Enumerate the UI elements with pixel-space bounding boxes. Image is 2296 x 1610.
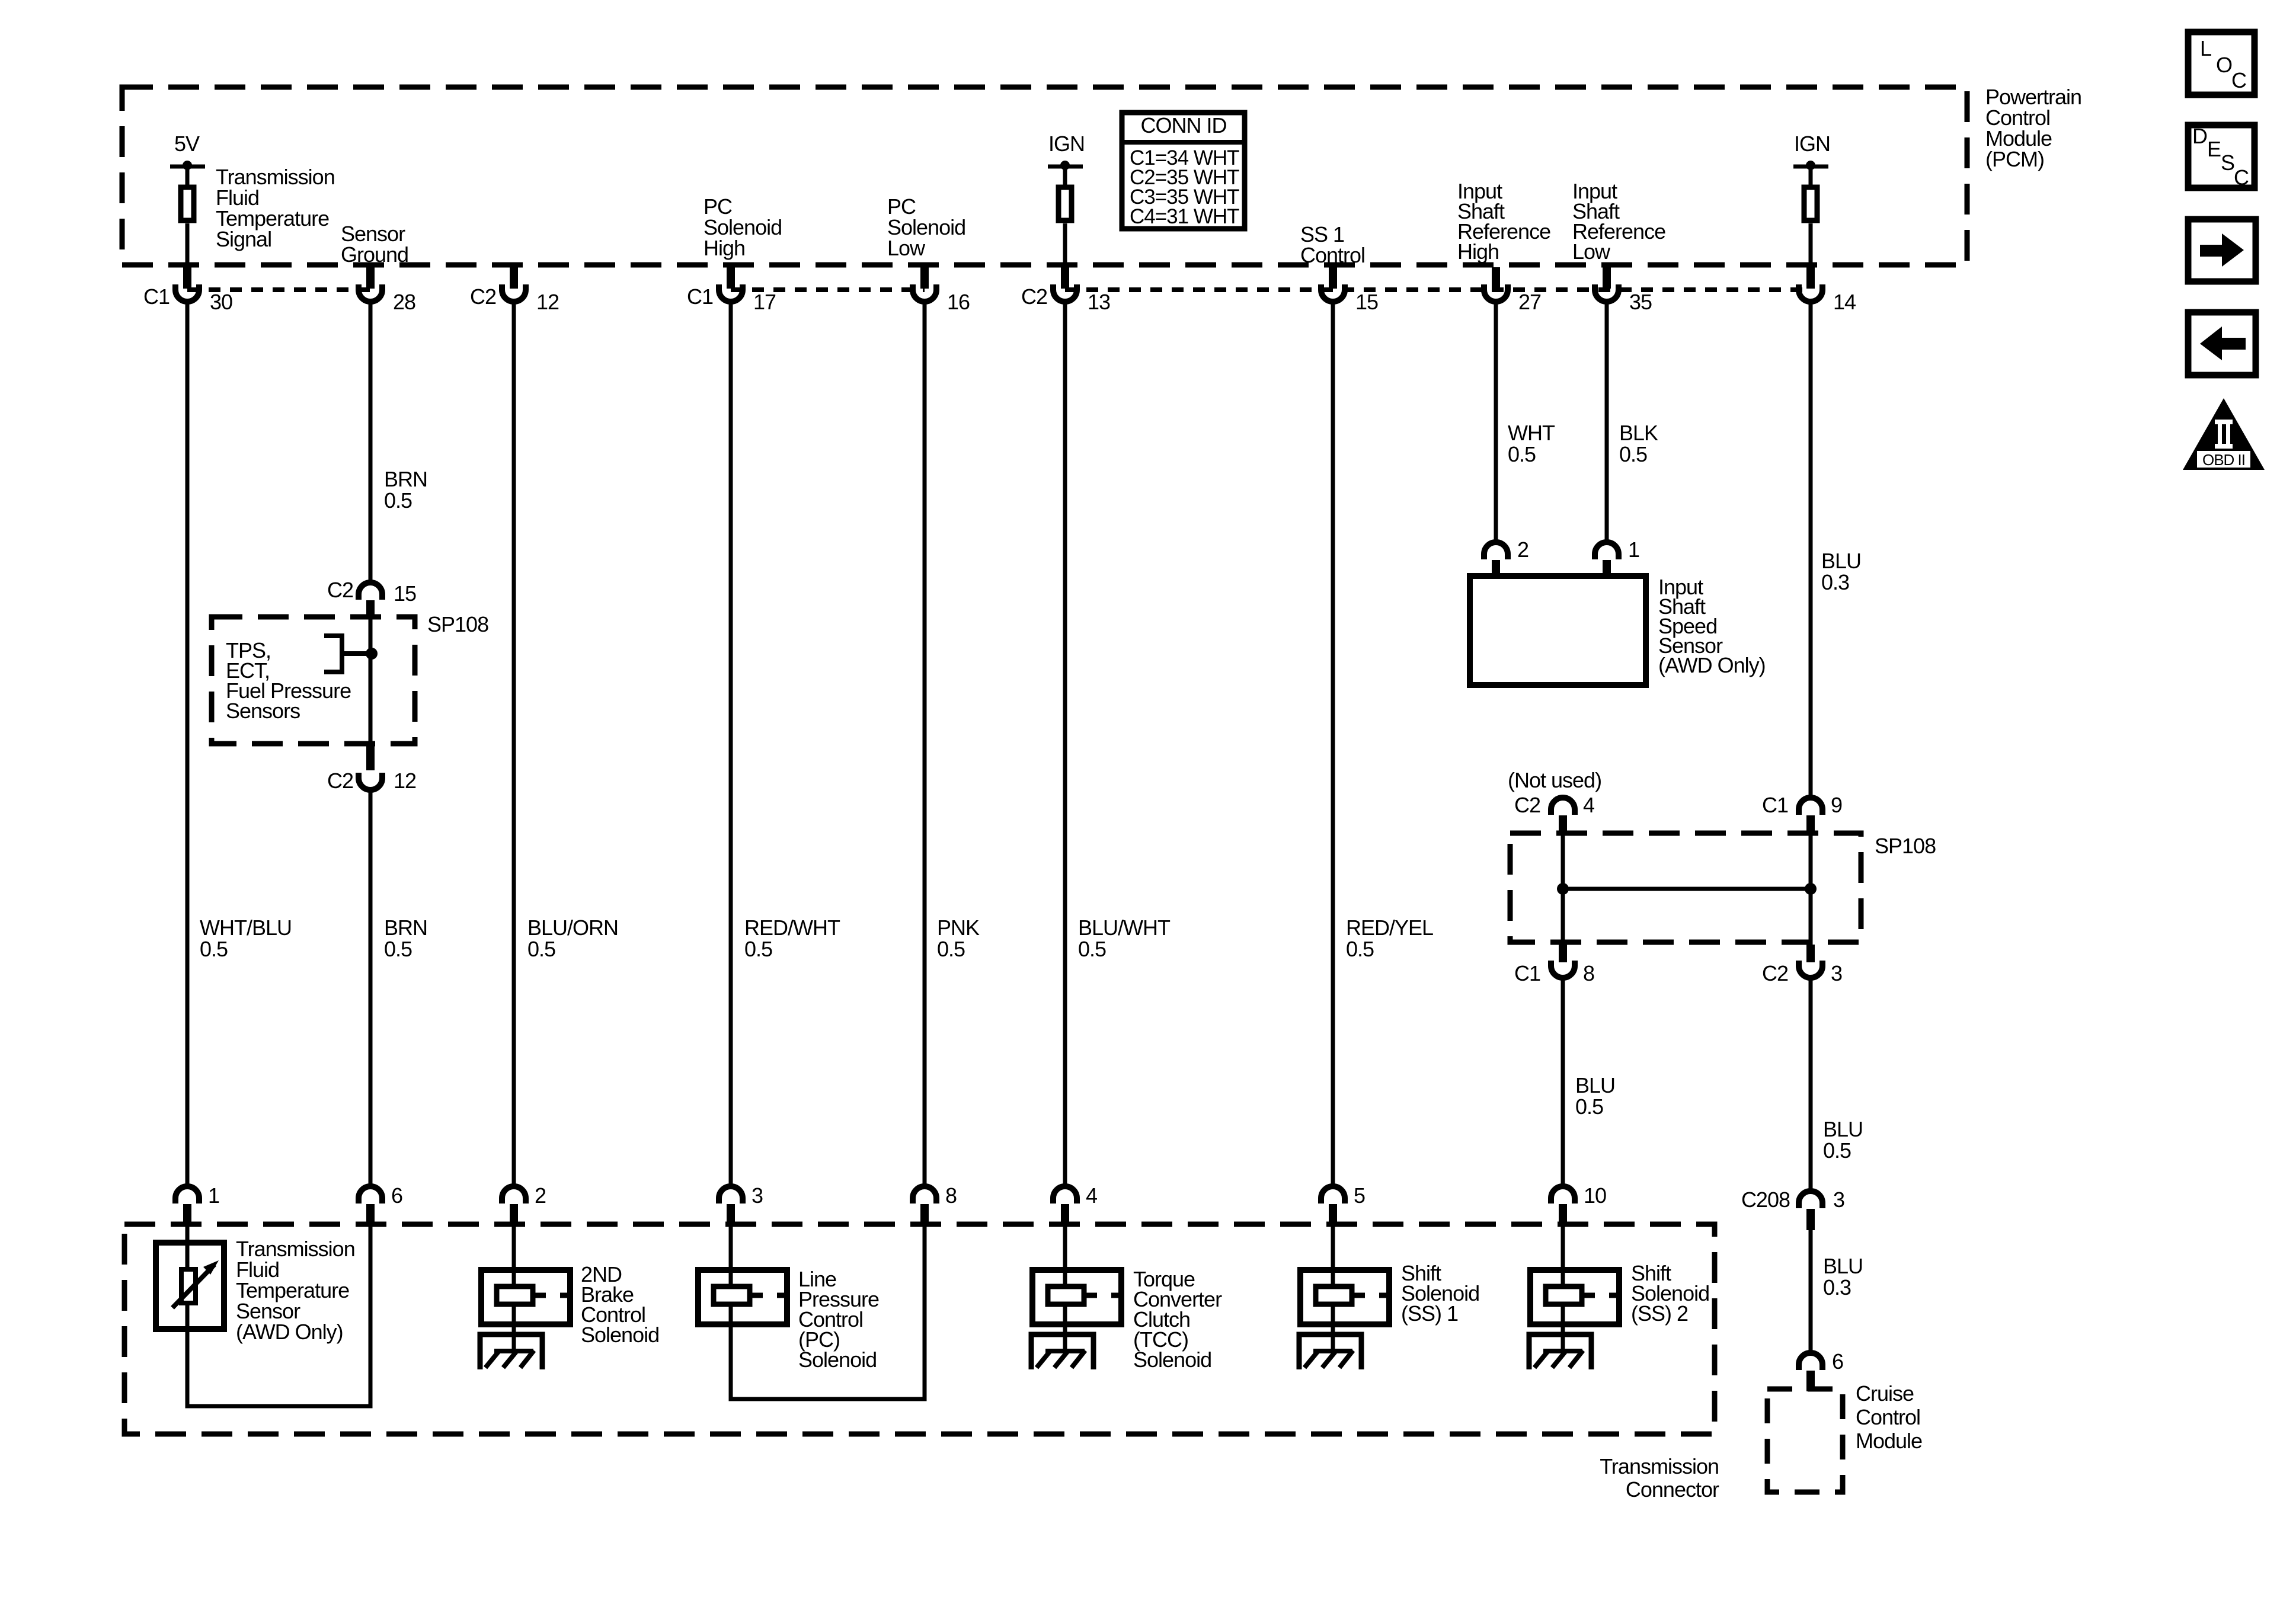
svg-text:BLU: BLU [1575,1073,1615,1097]
svg-text:12: 12 [394,769,416,793]
svg-text:17: 17 [753,290,776,314]
svg-text:0.5: 0.5 [744,937,772,961]
svg-text:C2: C2 [1021,284,1047,309]
svg-text:1: 1 [1628,537,1639,562]
svg-text:L: L [2200,36,2211,60]
svg-text:C208: C208 [1741,1188,1790,1212]
svg-text:Transmission: Transmission [1600,1454,1719,1478]
svg-text:0.3: 0.3 [1821,570,1849,594]
svg-text:High: High [1457,239,1499,264]
svg-text:BLU/ORN: BLU/ORN [527,916,618,940]
svg-text:SP108: SP108 [427,612,488,636]
svg-text:BLU: BLU [1821,549,1861,573]
svg-text:RED/YEL: RED/YEL [1346,916,1433,940]
svg-text:BLU: BLU [1823,1117,1863,1141]
svg-text:3: 3 [1831,961,1842,985]
svg-text:6: 6 [1832,1349,1843,1374]
svg-text:0.5: 0.5 [1619,442,1647,466]
svg-text:S: S [2221,151,2234,175]
svg-text:(SS) 2: (SS) 2 [1631,1301,1688,1326]
svg-text:0.5: 0.5 [1508,442,1536,466]
svg-text:C2: C2 [327,578,353,602]
svg-text:Cruise: Cruise [1856,1381,1914,1406]
svg-text:E: E [2207,137,2221,161]
svg-text:IGN: IGN [1048,132,1085,156]
svg-text:35: 35 [1629,290,1652,314]
svg-text:0.5: 0.5 [1078,937,1106,961]
svg-text:3: 3 [752,1183,763,1208]
svg-text:BRN: BRN [384,467,427,491]
svg-text:C1: C1 [1762,793,1788,817]
svg-text:1: 1 [208,1183,219,1208]
svg-text:27: 27 [1518,290,1541,314]
svg-text:0.5: 0.5 [1823,1138,1851,1163]
svg-text:(SS) 1: (SS) 1 [1401,1301,1458,1326]
svg-text:6: 6 [391,1183,402,1208]
svg-text:SP108: SP108 [1875,834,1936,858]
svg-text:8: 8 [1583,961,1594,985]
svg-text:C2: C2 [1762,961,1788,985]
svg-text:Control: Control [1856,1405,1920,1429]
svg-text:0.5: 0.5 [1575,1094,1603,1119]
svg-text:C: C [2231,68,2246,92]
svg-text:Sensors: Sensors [226,699,300,723]
svg-text:C: C [2234,165,2249,190]
svg-text:BLU: BLU [1823,1254,1863,1278]
svg-text:Solenoid: Solenoid [1133,1347,1211,1372]
svg-text:13: 13 [1088,290,1110,314]
svg-text:0.3: 0.3 [1823,1275,1851,1299]
svg-text:Module: Module [1856,1429,1922,1453]
svg-text:Control: Control [1300,243,1365,267]
svg-text:(PCM): (PCM) [1985,147,2044,171]
svg-text:C2: C2 [327,769,353,793]
svg-text:14: 14 [1833,290,1856,314]
svg-text:Low: Low [887,236,926,260]
svg-text:2: 2 [535,1183,546,1208]
svg-text:0.5: 0.5 [1346,937,1374,961]
svg-text:0.5: 0.5 [384,488,412,513]
svg-text:30: 30 [210,290,232,314]
svg-text:High: High [703,236,745,260]
svg-text:O: O [2216,53,2232,77]
svg-text:2: 2 [1517,537,1528,562]
svg-text:(Not used): (Not used) [1508,768,1601,792]
svg-text:D: D [2192,124,2207,148]
svg-text:4: 4 [1086,1183,1097,1208]
svg-text:C1: C1 [1514,961,1540,985]
svg-text:15: 15 [394,581,416,606]
svg-text:5V: 5V [174,132,200,156]
svg-text:C2: C2 [1514,793,1540,817]
svg-text:3: 3 [1833,1188,1844,1212]
svg-text:Solenoid: Solenoid [798,1347,877,1372]
svg-text:CONN ID: CONN ID [1141,113,1227,137]
svg-text:C1: C1 [143,284,170,309]
svg-text:C2: C2 [470,284,496,309]
svg-text:5: 5 [1354,1183,1365,1208]
svg-text:C4=31 WHT: C4=31 WHT [1130,205,1239,228]
svg-text:RED/WHT: RED/WHT [744,916,840,940]
svg-text:0.5: 0.5 [200,937,228,961]
svg-text:9: 9 [1831,793,1842,817]
svg-text:BRN: BRN [384,916,427,940]
svg-text:16: 16 [947,290,970,314]
svg-text:Low: Low [1572,239,1611,264]
svg-text:28: 28 [393,290,415,314]
svg-text:WHT/BLU: WHT/BLU [200,916,292,940]
svg-text:(AWD Only): (AWD Only) [236,1320,343,1344]
svg-text:C1: C1 [687,284,713,309]
svg-text:OBD II: OBD II [2202,451,2245,469]
svg-text:8: 8 [945,1183,957,1208]
svg-text:0.5: 0.5 [384,937,412,961]
svg-text:(AWD Only): (AWD Only) [1658,653,1766,677]
svg-text:Connector: Connector [1626,1477,1719,1502]
svg-text:10: 10 [1584,1183,1606,1208]
svg-text:WHT: WHT [1508,421,1555,445]
svg-text:15: 15 [1355,290,1378,314]
svg-text:4: 4 [1583,793,1594,817]
svg-text:Signal: Signal [216,227,271,251]
svg-text:BLU/WHT: BLU/WHT [1078,916,1171,940]
svg-text:PNK: PNK [937,916,980,940]
svg-text:BLK: BLK [1619,421,1658,445]
svg-text:0.5: 0.5 [937,937,965,961]
svg-text:Solenoid: Solenoid [581,1323,659,1347]
svg-text:Ground: Ground [341,242,408,267]
svg-text:IGN: IGN [1794,132,1830,156]
svg-text:0.5: 0.5 [527,937,555,961]
svg-text:12: 12 [536,290,559,314]
